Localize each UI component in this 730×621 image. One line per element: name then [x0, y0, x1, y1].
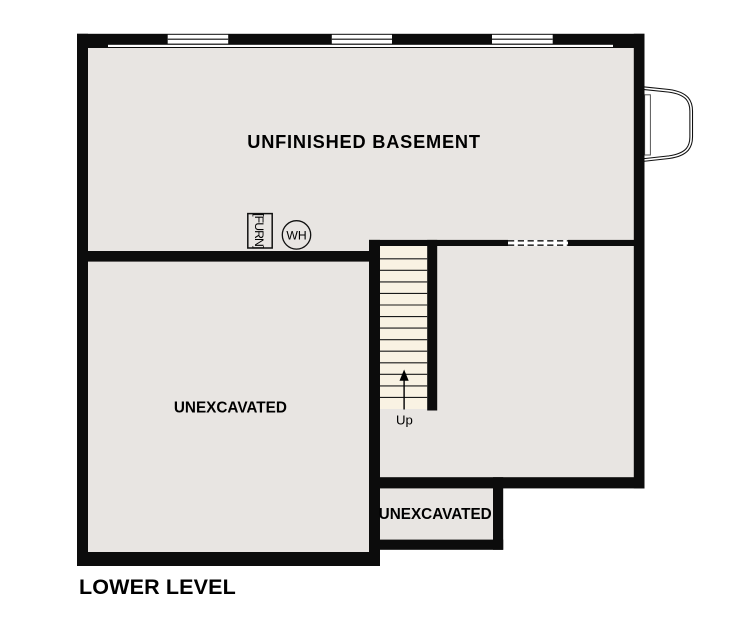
svg-text:UNEXCAVATED: UNEXCAVATED: [379, 506, 492, 523]
svg-text:[FURN]: [FURN]: [252, 213, 266, 249]
svg-text:UNEXCAVATED: UNEXCAVATED: [174, 399, 287, 416]
svg-text:Up: Up: [396, 413, 413, 428]
svg-text:UNFINISHED BASEMENT: UNFINISHED BASEMENT: [247, 132, 480, 152]
svg-text:LOWER LEVEL: LOWER LEVEL: [79, 575, 236, 599]
svg-text:WH: WH: [286, 229, 306, 243]
